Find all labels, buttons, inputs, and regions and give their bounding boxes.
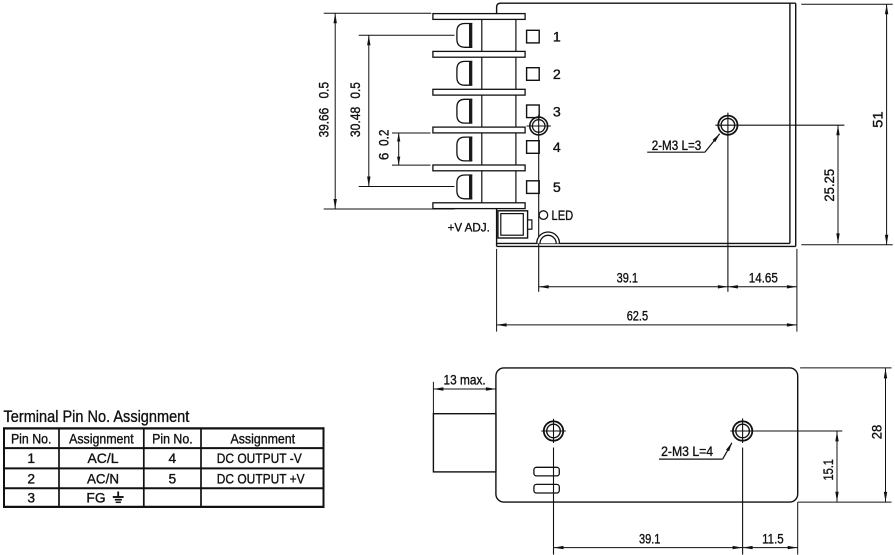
svg-text:15.1: 15.1 — [821, 459, 837, 481]
svg-text:DC OUTPUT -V: DC OUTPUT -V — [217, 451, 303, 466]
svg-text:28: 28 — [870, 425, 886, 440]
svg-text:AC/L: AC/L — [88, 451, 119, 466]
svg-text:62.5: 62.5 — [627, 308, 648, 324]
svg-text:AC/N: AC/N — [87, 471, 119, 486]
svg-text:FG: FG — [86, 491, 105, 506]
svg-text:LED: LED — [552, 208, 574, 224]
svg-text:25.25: 25.25 — [822, 169, 837, 202]
svg-text:Pin No.: Pin No. — [152, 432, 193, 447]
svg-text:Assignment: Assignment — [69, 432, 134, 447]
svg-text:51: 51 — [870, 111, 886, 128]
svg-text:5: 5 — [553, 180, 561, 196]
svg-text:0.5: 0.5 — [348, 82, 363, 99]
svg-text:4: 4 — [553, 140, 561, 156]
svg-text:1: 1 — [553, 30, 561, 46]
svg-text:2: 2 — [27, 471, 35, 486]
svg-text:0.2: 0.2 — [377, 130, 392, 147]
svg-text:14.65: 14.65 — [749, 270, 778, 286]
svg-text:13 max.: 13 max. — [444, 373, 486, 389]
svg-text:1: 1 — [27, 451, 35, 466]
svg-text:0.5: 0.5 — [316, 82, 331, 99]
svg-text:30.48: 30.48 — [348, 107, 363, 137]
svg-text:DC OUTPUT +V: DC OUTPUT +V — [217, 471, 306, 486]
svg-text:3: 3 — [27, 491, 35, 506]
svg-text:4: 4 — [169, 451, 177, 466]
svg-text:+V ADJ.: +V ADJ. — [448, 220, 490, 234]
svg-text:3: 3 — [553, 104, 561, 120]
svg-text:11.5: 11.5 — [762, 531, 784, 547]
svg-text:39.66: 39.66 — [316, 108, 331, 138]
svg-text:39.1: 39.1 — [639, 531, 661, 547]
svg-text:Terminal Pin No. Assignment: Terminal Pin No. Assignment — [4, 408, 190, 426]
svg-text:2: 2 — [553, 67, 561, 83]
svg-text:2-M3 L=4: 2-M3 L=4 — [661, 444, 713, 460]
svg-text:Pin No.: Pin No. — [11, 432, 52, 447]
svg-text:Assignment: Assignment — [231, 432, 296, 447]
svg-text:5: 5 — [169, 471, 177, 486]
svg-text:39.1: 39.1 — [617, 270, 638, 286]
svg-text:6: 6 — [377, 153, 392, 161]
